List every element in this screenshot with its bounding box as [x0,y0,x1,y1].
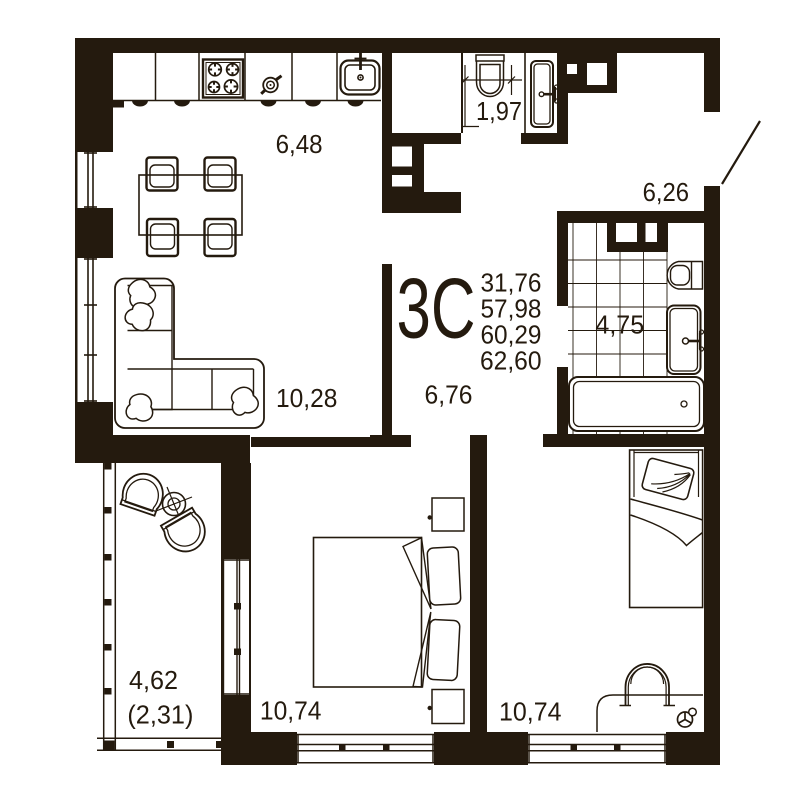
svg-text:10,74: 10,74 [260,698,322,726]
svg-text:6,48: 6,48 [276,131,323,159]
svg-text:3С: 3С [397,261,476,356]
svg-text:6,76: 6,76 [425,382,473,410]
svg-text:6,26: 6,26 [643,179,690,207]
svg-text:62,60: 62,60 [480,348,542,376]
svg-text:4,62: 4,62 [129,667,178,695]
svg-text:10,74: 10,74 [499,698,562,726]
svg-text:60,29: 60,29 [481,321,542,349]
svg-text:57,98: 57,98 [481,295,542,323]
svg-text:10,28: 10,28 [276,385,337,413]
svg-text:(2,31): (2,31) [127,702,193,730]
svg-text:1,97: 1,97 [476,98,522,126]
svg-text:4,75: 4,75 [595,311,644,339]
svg-text:31,76: 31,76 [481,269,542,297]
